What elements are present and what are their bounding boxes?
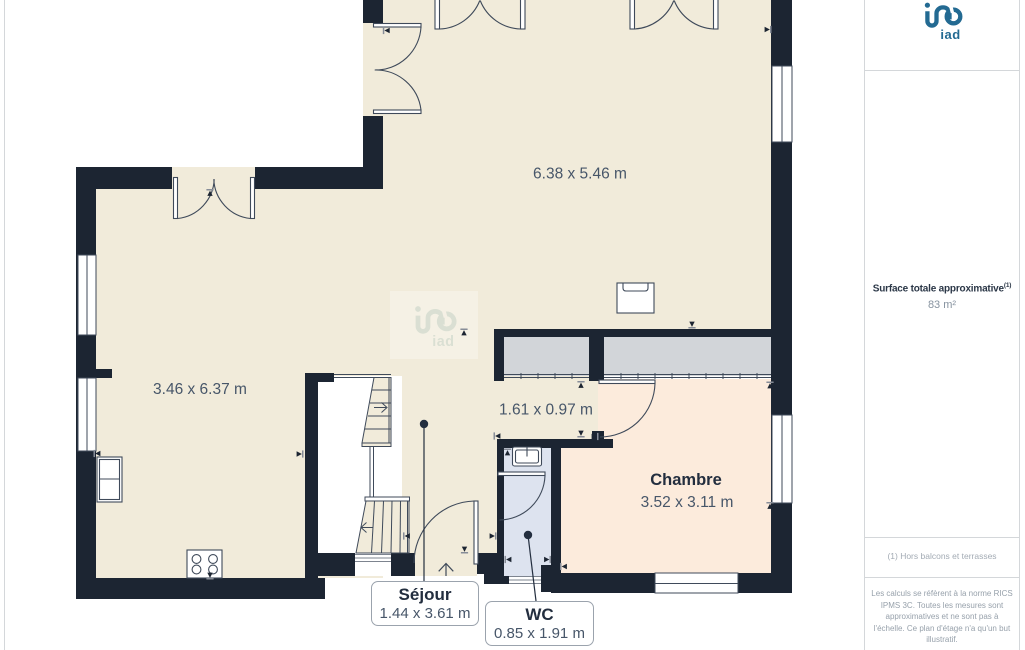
svg-text:3.46 x 6.37 m: 3.46 x 6.37 m	[153, 381, 247, 398]
svg-text:6.38 x 5.46 m: 6.38 x 5.46 m	[533, 166, 627, 183]
svg-text:iad: iad	[432, 334, 454, 350]
svg-text:Chambre: Chambre	[650, 471, 722, 489]
svg-text:1.61 x 0.97 m: 1.61 x 0.97 m	[499, 402, 593, 419]
svg-text:3.52 x 3.11 m: 3.52 x 3.11 m	[641, 494, 734, 511]
svg-text:iad: iad	[940, 27, 960, 42]
